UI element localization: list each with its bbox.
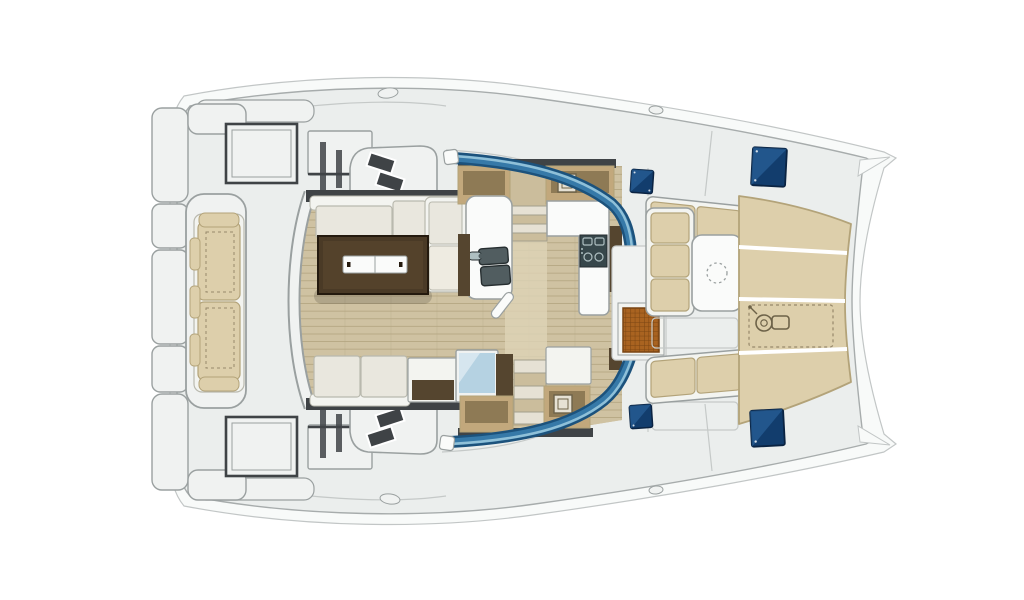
- cockpit-settee-arm: [646, 208, 694, 316]
- transom-step-panel: [152, 394, 188, 490]
- aft-bench-bolster: [199, 377, 239, 391]
- transom-step-panel: [152, 204, 188, 248]
- deck-seam-bar: [336, 414, 342, 452]
- sofa-chaise-cushion: [429, 246, 462, 290]
- stair-tread: [514, 373, 546, 386]
- bench-cushion: [697, 354, 741, 394]
- saloon-bench-starboard: [310, 356, 458, 406]
- companionway-stairs-port: [510, 168, 547, 241]
- skylight-hatch-small-port: [630, 169, 654, 193]
- bow-sunpads: [739, 196, 851, 424]
- bench-cushion: [651, 358, 695, 398]
- deck-seam-bar: [320, 408, 326, 458]
- sofa-chaise-cushion: [429, 202, 462, 244]
- stair-tread: [514, 399, 546, 412]
- dining-table: [314, 236, 432, 304]
- aft-bench-bolster: [190, 286, 200, 318]
- aft-bench-bolster: [190, 334, 200, 366]
- boat-floor-plan-canvas: [0, 0, 1024, 600]
- skylight-hatch-small-starboard: [629, 404, 653, 428]
- aft-bench-bolster: [190, 238, 200, 270]
- settee-cushion: [651, 213, 689, 243]
- stair-tread: [514, 360, 546, 373]
- bench-cushion: [314, 356, 360, 397]
- table-centerpiece: [343, 256, 407, 273]
- stair-tread: [510, 224, 547, 233]
- deck-seam-bar: [336, 150, 342, 188]
- sofa-cushion: [393, 201, 426, 239]
- sunpad-block: [739, 196, 851, 424]
- transom-step-panel: [152, 108, 188, 202]
- cockpit-table: [692, 235, 742, 311]
- sunpad-seam: [739, 299, 845, 301]
- saloon: [294, 149, 666, 451]
- galley-pillar: [458, 234, 470, 296]
- stair-tread: [510, 206, 547, 215]
- hatch-icon: [554, 395, 572, 413]
- chart-cabinet-front: [412, 380, 454, 400]
- transom-step-panel: [152, 346, 188, 392]
- deck-hatch-port: [226, 124, 297, 183]
- aft-bench: [190, 213, 244, 392]
- galley-stove: [580, 235, 607, 267]
- windshield-sill: [439, 435, 455, 451]
- galley-sink: [466, 196, 512, 299]
- transom-step-panel: [152, 250, 188, 344]
- stair-tread: [510, 215, 547, 224]
- storage-cabinet: [546, 347, 591, 384]
- bench-cushion: [361, 356, 407, 397]
- sink-basin: [480, 265, 510, 286]
- skylight-hatch-large-starboard: [750, 409, 785, 447]
- windshield-sill: [443, 149, 459, 165]
- cockpit-bench: [646, 349, 746, 404]
- sofa-cushion: [316, 206, 392, 238]
- companionway-stairs-starboard: [514, 360, 546, 424]
- storage-locker: [460, 396, 513, 432]
- aft-bench-bolster: [199, 213, 239, 227]
- settee-cushion: [651, 279, 689, 311]
- stair-tread: [510, 233, 547, 241]
- stair-tread: [514, 386, 546, 399]
- floor-plan-svg: [0, 0, 1024, 600]
- skylight-hatch-large-port: [751, 147, 787, 187]
- deck-seam-bar: [320, 142, 326, 192]
- deck-hatch-starboard: [226, 417, 297, 476]
- settee-cushion: [651, 245, 689, 277]
- sink-faucet-head: [479, 254, 484, 259]
- stair-tread: [514, 412, 546, 424]
